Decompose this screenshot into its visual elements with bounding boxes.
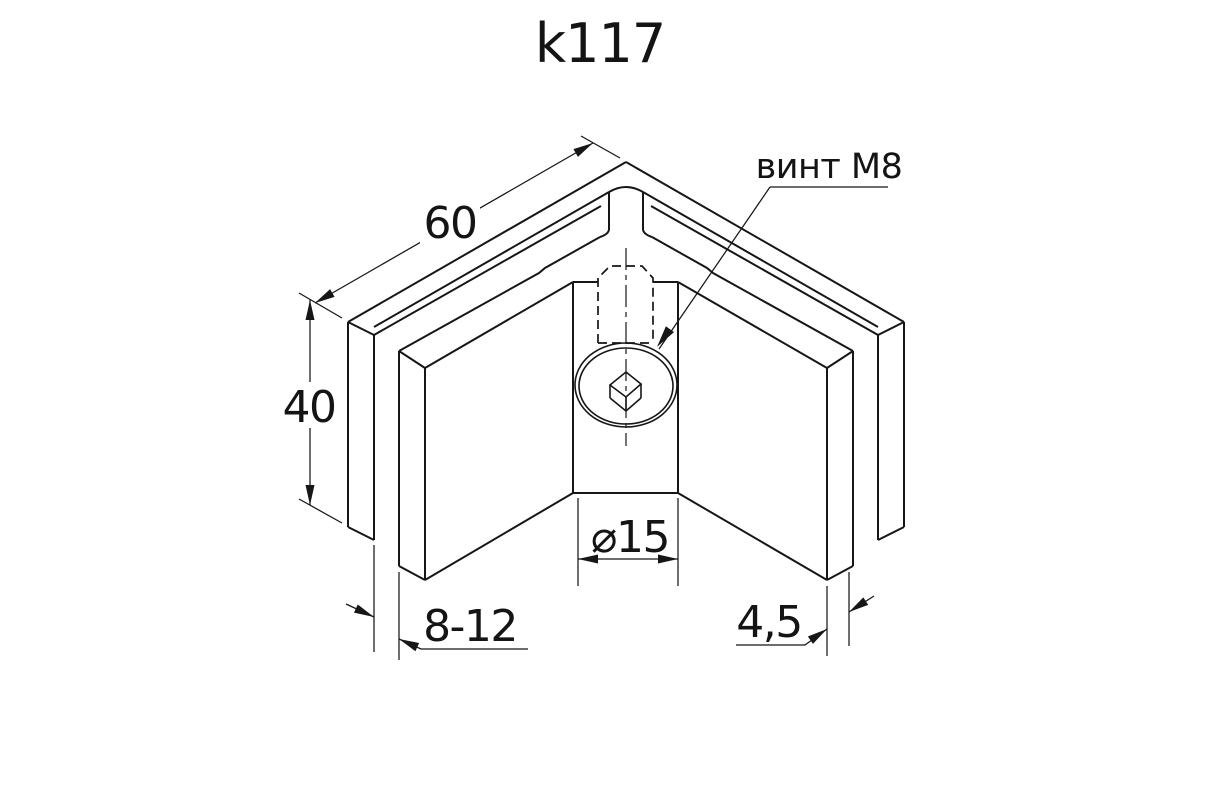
fillet-top-arc [609,187,643,192]
inner-plate-bottom-edge-right [678,493,827,580]
fillet-flare-left [600,229,609,237]
technical-drawing-canvas: 60 40 8-12 ⌀15 4,5 [0,0,1205,800]
drawing-sheet: 60 40 8-12 ⌀15 4,5 [0,0,1205,800]
drawing-title: k117 [535,12,665,75]
dim-4-5-arrow-left [808,625,830,644]
dim-60-value: 60 [424,198,477,249]
dim-60-extension-line-outer [299,293,342,318]
dimension-height-40: 40 [283,300,343,523]
dimension-width-60: 60 [299,136,620,318]
dim-8-12-arrow-right [397,635,419,651]
outer-plate-bottom-edge-right [878,527,904,540]
outer-plate-inner-chamfer-right [651,206,878,335]
socket-bottom-left-edge [610,398,626,411]
dim-60-arrow-lower [313,289,335,307]
screw-hidden-geometry [598,248,653,446]
dimension-plate-4-5: 4,5 [736,572,874,656]
inner-plate-end-top-edge-left [399,351,425,368]
inner-plate-end-bottom-edge-left [399,566,425,580]
fillet-flare-right [643,229,652,237]
dim-40-value: 40 [283,382,336,433]
socket-bottom-right-edge [626,398,641,411]
outer-plate-end-top-edge-left [348,322,374,335]
dim-8-12-value: 8-12 [423,601,517,652]
dimension-glass-8-12: 8-12 [346,545,528,660]
outer-plate-bottom-edge-left [348,527,374,540]
dim-4-5-value: 4,5 [736,597,801,648]
inner-plate-end-top-edge-right [827,351,853,368]
dimension-diameter-15: ⌀15 [578,498,678,586]
dim-40-arrow-bottom [306,485,315,505]
corner-fillet [600,187,652,237]
outer-plate-end-top-edge-right [878,322,904,335]
dim-4-5-arrow-right [847,597,869,615]
dim-d15-value: ⌀15 [591,512,669,563]
inner-plate-bottom-edge-left [425,493,573,580]
left-wing [348,162,626,580]
screw-label-arrow [653,326,674,350]
dim-8-12-arrow-left [354,604,376,621]
outer-plate-top-edge-left [348,162,626,322]
dim-40-extension-line-bottom [299,499,342,523]
outer-plate-inner-chamfer-left [374,206,601,335]
screw-label-text: винт М8 [756,147,903,187]
dim-40-arrow-top [306,300,315,320]
